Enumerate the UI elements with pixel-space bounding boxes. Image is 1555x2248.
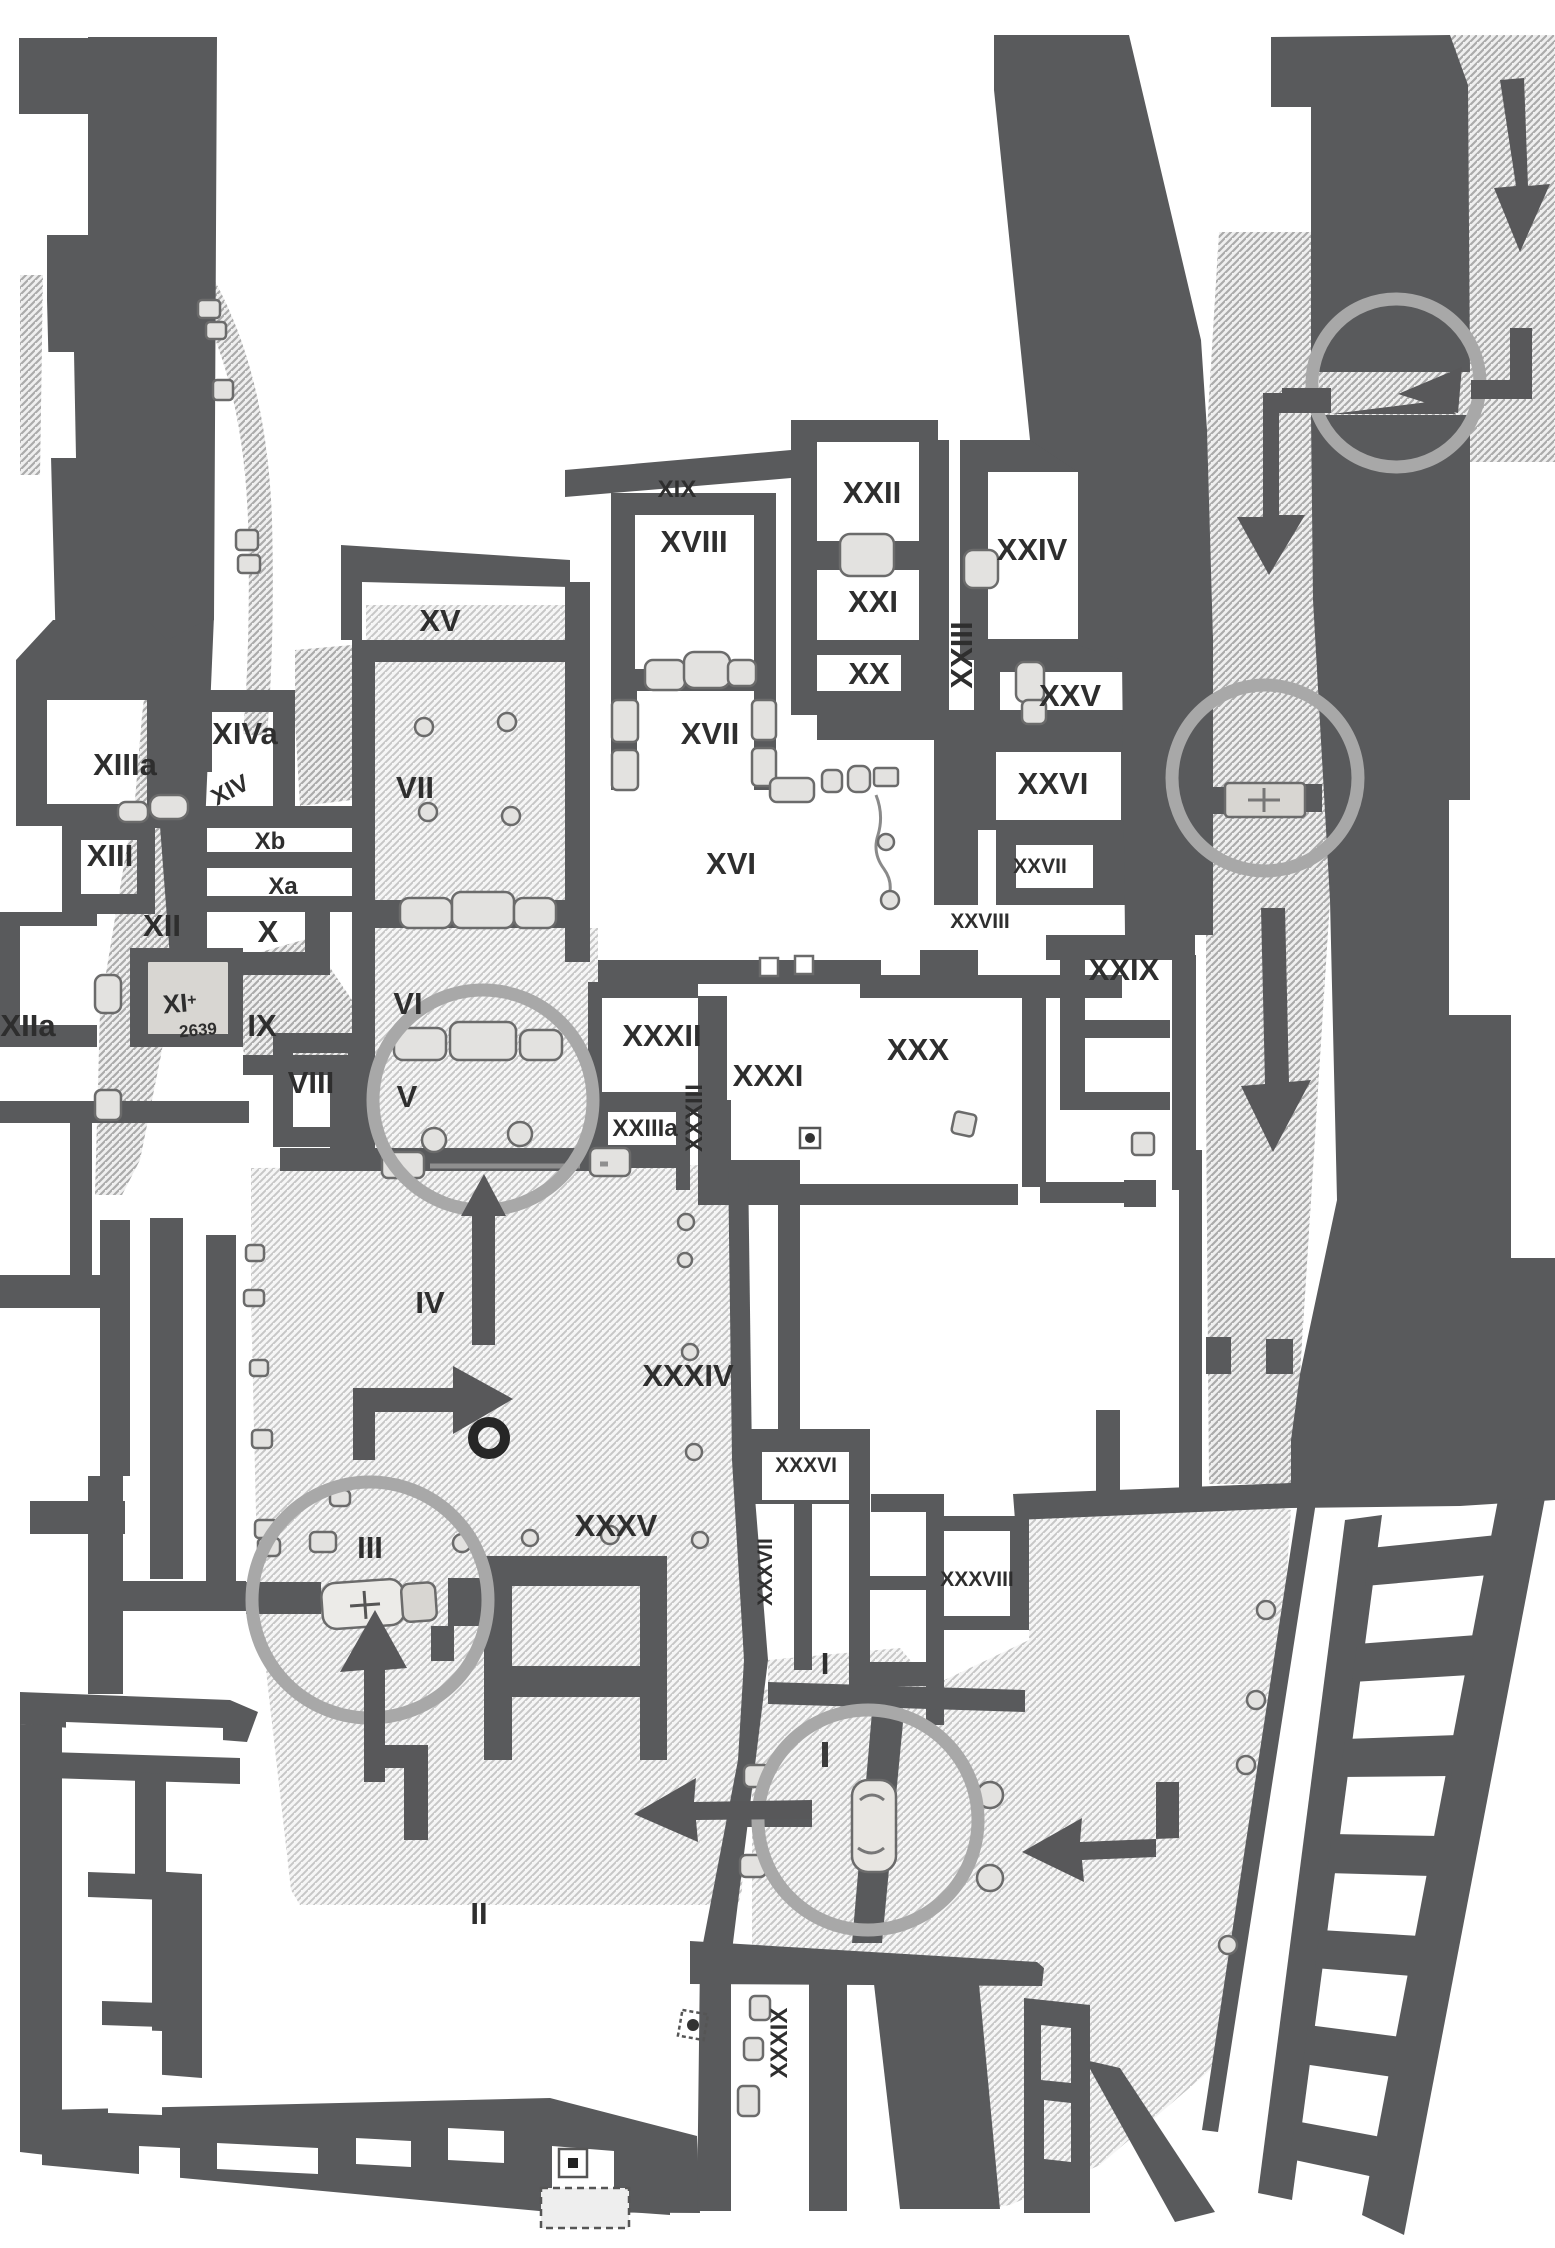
svg-text:III: III	[357, 1530, 383, 1565]
svg-text:XIX: XIX	[658, 476, 697, 503]
svg-text:VIII: VIII	[288, 1065, 335, 1100]
svg-text:XXVII: XXVII	[1013, 855, 1067, 878]
svg-text:XVII: XVII	[681, 716, 740, 751]
svg-text:VI: VI	[393, 986, 422, 1021]
svg-text:XXIII: XXIII	[944, 621, 979, 688]
svg-text:XXXIX: XXXIX	[766, 2008, 793, 2079]
svg-text:XXXVIII: XXXVIII	[940, 1568, 1014, 1591]
svg-text:XX: XX	[848, 656, 890, 691]
svg-text:XIIa: XIIa	[0, 1008, 56, 1043]
svg-text:XXVIII: XXVIII	[950, 910, 1010, 933]
svg-text:XXXVII: XXXVII	[754, 1538, 777, 1606]
svg-text:XVI: XVI	[706, 846, 756, 881]
svg-text:XXXI: XXXI	[733, 1058, 804, 1093]
svg-text:XIII: XIII	[87, 838, 134, 873]
svg-text:IV: IV	[415, 1285, 445, 1320]
svg-text:Xa: Xa	[268, 873, 298, 900]
svg-text:XXVI: XXVI	[1018, 766, 1089, 801]
svg-text:XXV: XXV	[1039, 678, 1101, 713]
svg-text:II: II	[470, 1896, 487, 1931]
svg-text:XII: XII	[143, 908, 181, 943]
svg-text:XXIIIa: XXIIIa	[612, 1115, 678, 1142]
svg-text:XXXVI: XXXVI	[775, 1454, 837, 1477]
svg-text:VII: VII	[396, 770, 434, 805]
svg-text:I: I	[821, 1646, 830, 1681]
svg-text:XXX: XXX	[887, 1032, 949, 1067]
svg-text:XIVa: XIVa	[212, 716, 278, 751]
svg-text:Xb: Xb	[255, 828, 286, 855]
svg-text:XXII: XXII	[843, 475, 902, 510]
svg-text:XXXIV: XXXIV	[642, 1358, 734, 1393]
svg-text:XIIIa: XIIIa	[93, 747, 158, 782]
svg-text:IX: IX	[247, 1008, 277, 1043]
svg-text:XV: XV	[419, 603, 461, 638]
svg-text:XXI: XXI	[848, 584, 898, 619]
svg-text:V: V	[397, 1079, 418, 1114]
svg-text:XXIV: XXIV	[997, 532, 1068, 567]
svg-text:X: X	[258, 914, 279, 949]
svg-text:XXXIII: XXXIII	[681, 1084, 708, 1152]
svg-text:XVIII: XVIII	[660, 524, 727, 559]
svg-text:XXIX: XXIX	[1089, 952, 1160, 987]
svg-text:2639: 2639	[178, 1019, 217, 1041]
svg-text:XXXII: XXXII	[622, 1018, 701, 1053]
svg-text:XXXV: XXXV	[575, 1508, 658, 1543]
